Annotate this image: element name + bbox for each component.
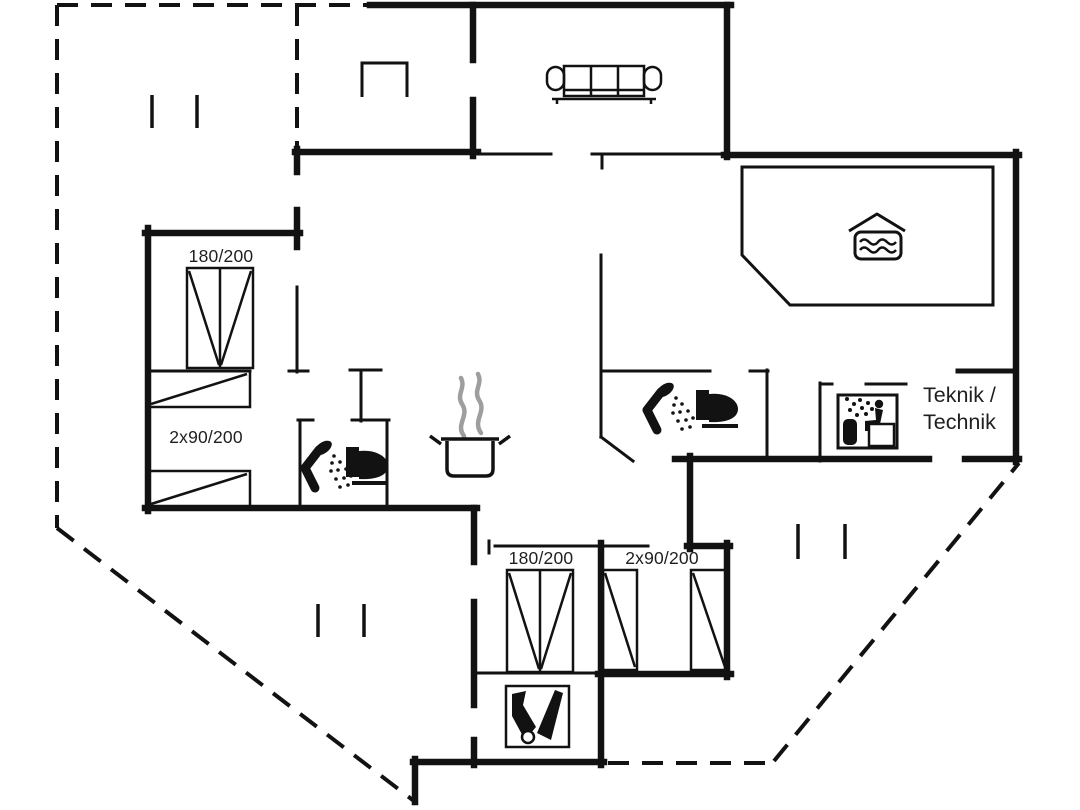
bed-double-left <box>187 268 253 368</box>
bed-single-left-1 <box>148 371 250 407</box>
steam-icon <box>460 374 481 436</box>
sauna-person-head <box>875 400 883 408</box>
bed-single-bottom-2 <box>691 570 727 670</box>
toilet-icon <box>696 390 738 426</box>
spa-bath-icon <box>849 214 905 259</box>
bed-size-label: 180/200 <box>509 548 574 568</box>
cooking-pot-icon <box>430 374 510 476</box>
floor-plan-drawing: 180/200 2x90/200 180/200 2x90/200 Teknik… <box>0 0 1080 810</box>
terrace-edge-diagonal-right <box>774 463 1019 761</box>
shower-icon <box>647 380 695 431</box>
bed-single-bottom-1 <box>603 570 637 670</box>
terrace-edge-diagonal-left <box>57 528 414 801</box>
floor-plan: 180/200 2x90/200 180/200 2x90/200 Teknik… <box>0 0 1080 810</box>
labels: 180/200 2x90/200 180/200 2x90/200 Teknik… <box>169 246 996 568</box>
shower-icon <box>305 438 353 489</box>
bed-single-left-2 <box>148 471 250 507</box>
wood-stove-icon <box>362 63 407 97</box>
spa-pool-outline <box>742 167 993 305</box>
bed-size-label: 2x90/200 <box>169 427 243 447</box>
toilet-icon <box>346 447 388 483</box>
sofa-icon <box>547 66 661 104</box>
terrace-dashed-boundary <box>57 5 1019 801</box>
bed-double-bottom <box>507 570 573 672</box>
technical-room-label: Teknik / <box>923 383 996 407</box>
bed-size-label: 2x90/200 <box>625 548 699 568</box>
sauna-icon <box>838 395 897 448</box>
technical-room-label: Technik <box>923 410 996 434</box>
cleaning-equipment-icon <box>506 686 569 747</box>
bed-size-label: 180/200 <box>189 246 254 266</box>
exterior-walls <box>145 5 1019 802</box>
